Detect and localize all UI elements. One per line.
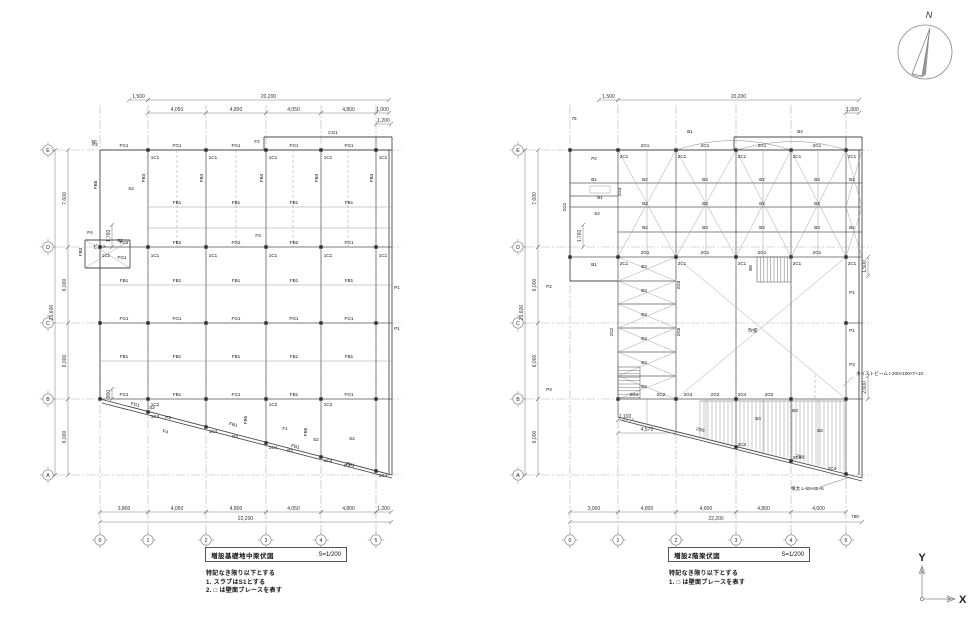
- drawing-label: 2G1: [758, 143, 767, 148]
- drawing-label: FB1: [345, 278, 354, 283]
- drawing-label: FB1: [345, 354, 354, 359]
- left-plan-scale: S=1/200: [318, 552, 341, 558]
- drawing-label: 1C4: [379, 473, 388, 478]
- drawing-label: FB4: [369, 173, 374, 182]
- drawing-label: 2C1: [738, 154, 747, 159]
- note-line: 1. スラブはS1とする: [206, 579, 282, 588]
- drawing-label: 1C1: [102, 253, 111, 258]
- drawing-label: 4,800: [757, 506, 770, 512]
- drawing-label: 4,800: [230, 107, 243, 113]
- drawing-label: B1: [591, 177, 597, 182]
- drawing-label: 1: [617, 538, 620, 544]
- drawing-label: FB1: [232, 278, 241, 283]
- drawing-label: 4,800: [230, 506, 243, 512]
- drawing-label: FB1: [173, 354, 182, 359]
- column-mark: [616, 255, 619, 258]
- drawing-label: FB2: [173, 240, 182, 245]
- drawing-label: ピット: [93, 244, 107, 249]
- column-mark: [568, 148, 571, 151]
- left-plan-title: 増設基礎地中梁伏図: [211, 550, 274, 560]
- drawing-label: 4,050: [287, 107, 300, 113]
- drawing-label: 1,500: [602, 94, 615, 100]
- drawing-label: FB1: [232, 200, 241, 205]
- drawing-label: S2: [149, 405, 155, 410]
- drawing-label: P1: [394, 285, 400, 290]
- column-mark: [319, 455, 322, 458]
- drawing-label: B3: [641, 384, 647, 389]
- drawing-label: 2G1: [813, 250, 822, 255]
- drawing-label: FB4: [199, 173, 204, 182]
- drawing-label: 1,500: [862, 260, 868, 273]
- drawing-label: D: [46, 245, 50, 251]
- drawing-label: P4: [87, 230, 93, 235]
- drawing-label: 1C1: [209, 253, 218, 258]
- drawing-label: FG1: [232, 316, 241, 321]
- drawing-label: 1C1: [151, 253, 160, 258]
- right-plan-title: 増設2階梁伏図: [674, 550, 720, 560]
- drawing-label: B1: [591, 262, 597, 267]
- grid-lines: [56, 105, 402, 548]
- drawing-label: FB1: [290, 354, 299, 359]
- drawing-label: 2G6: [696, 426, 706, 433]
- drawing-label: FB1: [290, 278, 299, 283]
- drawing-label: FG1: [232, 143, 241, 148]
- drawing-label: 1,000: [846, 107, 859, 113]
- drawing-label: B3: [814, 201, 820, 206]
- drawing-label: B3: [641, 264, 647, 269]
- drawing-label: 1C4: [151, 414, 160, 419]
- drawing-label: 2C1: [678, 261, 687, 266]
- drawing-label: P3: [232, 434, 238, 439]
- drawing-label: 2C4: [738, 442, 747, 447]
- drawing-label: B: [516, 397, 520, 403]
- column-mark: [734, 397, 737, 400]
- column-mark: [264, 245, 267, 248]
- drawing-label: 1,200: [377, 506, 390, 512]
- column-mark: [844, 321, 847, 324]
- drawing-label: C: [516, 321, 520, 327]
- drawing-label: 4: [790, 538, 793, 544]
- y-axis-label: Y: [918, 552, 926, 564]
- drawing-label: CG1: [328, 130, 338, 135]
- dimensions: 1,50020,2001,0003,0004,8004,6004,8004,60…: [519, 94, 870, 524]
- drawing-label: F4: [162, 428, 169, 434]
- drawing-label: P1: [394, 326, 400, 331]
- drawing-label: FG1: [120, 392, 129, 397]
- drawing-label: 根太 L-65×65×6: [791, 485, 824, 492]
- drawing-label: 1,000: [376, 107, 389, 113]
- drawing-label: 4,050: [171, 506, 184, 512]
- drawing-label: 2C1: [678, 154, 687, 159]
- drawing-label: 22,200: [238, 516, 254, 522]
- drawing-label: D: [516, 245, 520, 251]
- drawing-label: 2C1: [793, 261, 802, 266]
- drawing-label: 4,600: [812, 506, 825, 512]
- foundation-plan: 012345EDCBA1,50020,2004,0504,8004,0504,8…: [40, 94, 402, 548]
- drawing-label: B2: [642, 225, 648, 230]
- note-line: 1. □ は壁面ブレースを表す: [669, 579, 745, 588]
- dashed-lines: [177, 150, 348, 247]
- drawing-label: 1C1: [324, 253, 333, 258]
- column-mark: [374, 245, 377, 248]
- drawing-label: 1,500: [132, 94, 145, 100]
- column-mark: [374, 321, 377, 324]
- drawing-label: 5: [375, 538, 378, 544]
- column-mark: [319, 148, 322, 151]
- column-mark: [146, 148, 149, 151]
- drawing-label: F3: [255, 233, 261, 238]
- drawing-label: P2: [546, 284, 552, 289]
- drawing-label: 2G1: [701, 250, 710, 255]
- right-plan-scale: S=1/200: [781, 552, 804, 558]
- xy-axis-indicator: Y X: [893, 550, 971, 620]
- drawing-label: 4,800: [641, 506, 654, 512]
- drawing-label: FB5: [243, 415, 248, 424]
- drawing-label: P3: [165, 415, 171, 420]
- drawing-label: 2G2: [609, 327, 614, 336]
- drawing-label: 2C1: [848, 154, 857, 159]
- north-label: N: [926, 10, 933, 20]
- drawing-label: FB1: [290, 392, 299, 397]
- joist-hatch: [700, 401, 846, 472]
- column-mark: [204, 245, 207, 248]
- drawing-label: 1C4: [269, 445, 278, 450]
- column-mark: [146, 321, 149, 324]
- drawing-label: B1: [849, 177, 855, 182]
- drawing-label: B1: [597, 195, 603, 200]
- column-mark: [319, 245, 322, 248]
- drawing-label: 2G1: [641, 250, 650, 255]
- drawing-label: FG1: [118, 255, 127, 260]
- drawing-label: 2G3: [676, 280, 681, 289]
- drawing-label: B4: [797, 129, 803, 134]
- drawing-label: 5: [845, 538, 848, 544]
- drawing-label: P3: [344, 463, 350, 468]
- drawing-label: B8: [748, 265, 753, 271]
- drawing-label: 7,600: [532, 192, 538, 205]
- drawing-label: 1,100: [619, 414, 632, 420]
- column-mark: [789, 397, 792, 400]
- drawing-label: P1: [849, 290, 855, 295]
- drawing-label: 1C1: [151, 155, 160, 160]
- drawing-label: 1,760: [106, 230, 112, 243]
- drawing-label: 2C1: [848, 261, 857, 266]
- drawing-label: 25,600: [49, 305, 55, 321]
- drawing-label: 3,000: [588, 506, 601, 512]
- drawing-label: 2: [675, 538, 678, 544]
- drawing-label: 2C1: [793, 154, 802, 159]
- drawing-label: B3: [792, 408, 798, 413]
- drawing-label: FG1: [290, 316, 299, 321]
- drawing-label: 1C1: [269, 155, 278, 160]
- drawing-label: 22,200: [708, 516, 724, 522]
- column-mark: [264, 148, 267, 151]
- column-mark: [674, 397, 677, 400]
- drawing-label: 吹抜: [748, 327, 758, 334]
- drawing-label: B2: [759, 201, 765, 206]
- drawing-label: FB1: [232, 354, 241, 359]
- drawing-label: 2: [205, 538, 208, 544]
- drawing-label: 2G1: [758, 250, 767, 255]
- drawing-label: 6,000: [62, 279, 68, 292]
- drawing-label: 2G5: [676, 327, 681, 336]
- drawing-label: 2G2: [711, 392, 720, 397]
- column-mark: [98, 321, 101, 324]
- drawing-label: 1C4: [209, 429, 218, 434]
- drawing-label: 2G2: [562, 202, 567, 211]
- drawing-label: E: [516, 148, 520, 154]
- drawing-label: FG2: [232, 240, 241, 245]
- grid-bubbles: 012345EDCBA: [40, 142, 384, 548]
- column-mark: [844, 255, 847, 258]
- braces: [618, 150, 862, 399]
- drawing-label: B1: [687, 129, 693, 134]
- drawing-label: FB3: [78, 247, 83, 256]
- drawing-label: E: [46, 148, 50, 154]
- drawing-label: B1: [849, 225, 855, 230]
- drawing-label: 4,600: [700, 506, 713, 512]
- drawing-label: FB1: [345, 200, 354, 205]
- drawing-label: 4,050: [171, 107, 184, 113]
- note-line: 2. □ は壁面ブレースを表す: [206, 587, 282, 596]
- column-mark: [568, 255, 571, 258]
- drawing-label: 1C1: [269, 253, 278, 258]
- drawing-label: FG2: [120, 240, 129, 245]
- drawing-label: B3: [702, 201, 708, 206]
- drawing-label: 20,200: [261, 94, 277, 100]
- drawing-label: 1C2: [269, 402, 278, 407]
- drawing-label: FB2: [290, 240, 299, 245]
- drawing-label: F1: [282, 426, 288, 431]
- column-mark: [844, 397, 847, 400]
- drawing-label: FB1: [173, 392, 182, 397]
- drawing-label: 4,570: [641, 427, 654, 433]
- grid-lines: [526, 105, 872, 548]
- drawing-label: B: [46, 397, 50, 403]
- column-mark: [204, 425, 207, 428]
- drawing-label: B3: [702, 225, 708, 230]
- drawing-label: 1C1: [324, 155, 333, 160]
- column-mark: [319, 321, 322, 324]
- drawing-label: B3: [814, 177, 820, 182]
- drawing-label: 2G2: [657, 392, 666, 397]
- drawing-label: S2: [313, 437, 319, 442]
- column-mark: [844, 472, 847, 475]
- drawing-label: P3: [546, 387, 552, 392]
- drawing-label: P3: [287, 448, 293, 453]
- column-mark: [204, 321, 207, 324]
- drawing-label: P3: [849, 362, 855, 367]
- drawing-label: B3: [641, 312, 647, 317]
- drawing-label: FB1: [120, 354, 129, 359]
- drawing-label: B3: [817, 428, 823, 433]
- drawing-label: 1,760: [577, 230, 583, 243]
- drawing-label: FG1: [345, 240, 354, 245]
- left-plan-notes: 特記なき限り以下とする 1. スラブはS1とする 2. □ は壁面ブレースを表す: [206, 570, 282, 596]
- drawing-label: FB1: [229, 421, 239, 428]
- drawing-label: 6,000: [62, 431, 68, 444]
- drawing-label: 750: [851, 514, 859, 519]
- drawing-label: FG1: [345, 392, 354, 397]
- dimensions: 1,50020,2004,0504,8004,0504,8001,0001,20…: [49, 94, 393, 524]
- drawing-label: 2C1: [620, 261, 629, 266]
- drawing-label: FB4: [141, 173, 146, 182]
- drawing-label: FB4: [314, 173, 319, 182]
- drawing-label: 3: [735, 538, 738, 544]
- drawing-label: 2G4: [630, 392, 639, 397]
- drawing-label: ホイストビーム I-200×100×7×10: [856, 370, 923, 376]
- drawing-label: FG1: [173, 143, 182, 148]
- drawing-label: FB6: [303, 427, 308, 436]
- drawing-label: B3: [755, 416, 761, 421]
- drawing-label: A: [46, 473, 50, 479]
- drawing-label: 2C1: [620, 154, 629, 159]
- column-mark: [616, 148, 619, 151]
- drawing-label: F2: [254, 139, 260, 144]
- drawing-label: 2G4: [684, 392, 693, 397]
- drawing-label: 6,000: [532, 279, 538, 292]
- drawing-label: 1C1: [209, 155, 218, 160]
- note-line: 特記なき限り以下とする: [669, 570, 745, 579]
- drawing-label: 3,800: [118, 506, 131, 512]
- drawing-label: S2: [594, 211, 600, 216]
- drawing-label: 6,000: [532, 431, 538, 444]
- drawing-label: 1C1: [379, 253, 388, 258]
- drawing-label: B2: [759, 177, 765, 182]
- drawing-label: FB8: [93, 180, 98, 189]
- drawing-label: FB1: [120, 278, 129, 283]
- drawing-label: FG1: [345, 316, 354, 321]
- drawing-label: FG1: [232, 392, 241, 397]
- column-mark: [264, 441, 267, 444]
- plan-svg: 012345EDCBA1,50020,2004,0504,8004,0504,8…: [0, 0, 971, 624]
- drawing-label: 0: [99, 538, 102, 544]
- axis-origin: [920, 597, 923, 600]
- drawing-label: B2: [759, 225, 765, 230]
- drawing-label: 2C1: [738, 261, 747, 266]
- drawing-label: 3: [265, 538, 268, 544]
- drawing-label: 0: [569, 538, 572, 544]
- columns: [98, 148, 377, 472]
- right-plan-title-block: 増設2階梁伏図 S=1/200: [668, 547, 810, 562]
- drawing-label: 1C1: [379, 155, 388, 160]
- drawing-label: 75: [571, 116, 577, 121]
- drawing-label: 50: [91, 139, 97, 144]
- drawing-label: 7,600: [62, 192, 68, 205]
- drawing-label: FB1: [173, 200, 182, 205]
- drawing-label: B3: [814, 225, 820, 230]
- drawing-label: 2G4: [738, 392, 747, 397]
- drawing-label: FG1: [345, 143, 354, 148]
- drawing-label: 1: [147, 538, 150, 544]
- column-mark: [146, 245, 149, 248]
- drawing-label: FB1: [290, 200, 299, 205]
- labels: P2FG1FG1FG1FG1CG1FG1F2501C11C11C11C11C1F…: [78, 130, 400, 478]
- drawing-label: 1C2: [324, 402, 333, 407]
- drawing-label: B3: [641, 288, 647, 293]
- drawing-label: 2G1: [701, 143, 710, 148]
- drawing-label: 6,000: [62, 355, 68, 368]
- column-mark: [374, 397, 377, 400]
- column-mark: [319, 397, 322, 400]
- drawing-label: FG1: [290, 143, 299, 148]
- column-mark: [98, 397, 101, 400]
- column-mark: [374, 469, 377, 472]
- column-mark: [674, 255, 677, 258]
- drawing-label: B3: [641, 336, 647, 341]
- drawing-label: 800: [106, 390, 112, 399]
- drawing-label: FG1: [120, 316, 129, 321]
- column-mark: [374, 148, 377, 151]
- drawing-label: 2G1: [641, 143, 650, 148]
- drawing-label: 4,050: [287, 506, 300, 512]
- drawing-label: 2G3: [617, 187, 622, 196]
- column-mark: [264, 397, 267, 400]
- drawing-label: S2: [349, 436, 355, 441]
- second-floor-plan: 012345EDCBA1,50020,2001,0003,0004,8004,6…: [510, 94, 924, 548]
- drawing-label: 1,200: [377, 118, 390, 124]
- drawing-label: 2C4: [828, 466, 837, 471]
- drawing-label: B3: [641, 360, 647, 365]
- right-plan-notes: 特記なき限り以下とする 1. □ は壁面ブレースを表す: [669, 570, 745, 587]
- drawing-label: 4,800: [342, 107, 355, 113]
- drawing-label: FG1: [120, 143, 129, 148]
- drawing-label: P2: [591, 156, 597, 161]
- column-mark: [204, 148, 207, 151]
- x-axis-label: X: [959, 594, 967, 606]
- drawing-label: C: [46, 321, 50, 327]
- labels: B1B475P22G12G12G12G12C12C12C12C12C1B1B2B…: [546, 116, 923, 519]
- north-compass: N: [885, 4, 969, 96]
- column-mark: [204, 397, 207, 400]
- drawing-label: 25,600: [519, 305, 525, 321]
- drawing-label: FB4: [259, 173, 264, 182]
- drawing-label: B2: [642, 201, 648, 206]
- drawing-label: 4: [320, 538, 323, 544]
- drawing-label: A: [516, 473, 520, 479]
- column-mark: [734, 255, 737, 258]
- drawing-label: 4,800: [342, 506, 355, 512]
- drawing-label: 20,200: [731, 94, 747, 100]
- drawing-label: P1: [849, 328, 855, 333]
- drawing-canvas: { "page": {"background":"#ffffff","line_…: [0, 0, 971, 624]
- column-mark: [146, 410, 149, 413]
- column-mark: [146, 397, 149, 400]
- drawing-label: 2,600: [862, 381, 868, 394]
- drawing-label: 2G1: [813, 143, 822, 148]
- note-line: 特記なき限り以下とする: [206, 570, 282, 579]
- drawing-label: B2: [642, 177, 648, 182]
- drawing-label: S2: [128, 186, 134, 191]
- drawing-label: FB1: [173, 278, 182, 283]
- drawing-label: 6,000: [532, 355, 538, 368]
- left-plan-title-block: 増設基礎地中梁伏図 S=1/200: [205, 547, 347, 562]
- drawing-label: FG1: [173, 316, 182, 321]
- leaders: [820, 377, 853, 487]
- drawing-label: 1C4: [324, 458, 333, 463]
- drawing-label: B3: [702, 177, 708, 182]
- drawing-label: 2G2: [765, 392, 774, 397]
- column-mark: [264, 321, 267, 324]
